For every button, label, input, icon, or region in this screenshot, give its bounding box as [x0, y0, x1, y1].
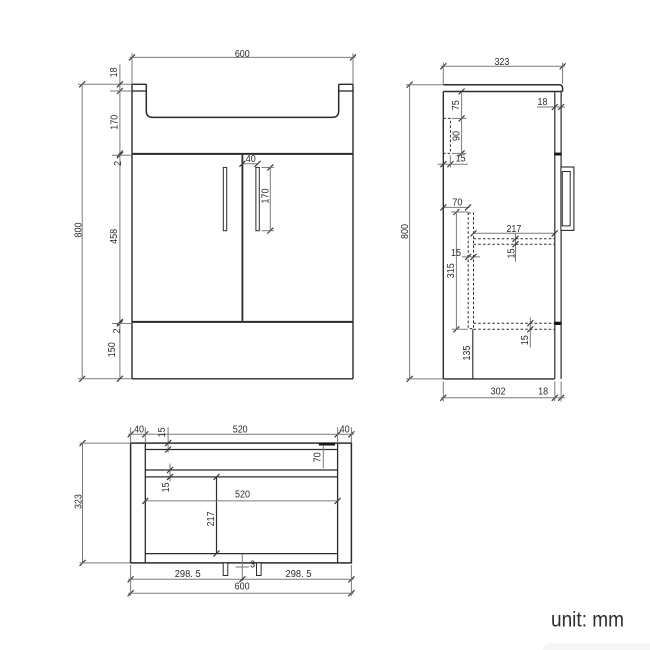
- svg-text:90: 90: [452, 131, 463, 141]
- svg-text:520: 520: [235, 490, 250, 501]
- svg-text:800: 800: [400, 224, 411, 239]
- svg-text:298. 5: 298. 5: [286, 569, 312, 580]
- svg-text:458: 458: [109, 229, 120, 244]
- svg-text:15: 15: [456, 154, 466, 165]
- svg-text:323: 323: [494, 57, 509, 68]
- svg-text:15: 15: [507, 248, 518, 258]
- svg-text:15: 15: [157, 427, 168, 437]
- svg-text:unit: mm: unit: mm: [551, 609, 624, 632]
- svg-text:800: 800: [74, 222, 85, 237]
- svg-text:600: 600: [235, 49, 250, 60]
- svg-text:18: 18: [109, 67, 120, 77]
- svg-text:520: 520: [233, 425, 248, 436]
- svg-text:217: 217: [206, 511, 217, 526]
- svg-text:18: 18: [538, 97, 548, 108]
- svg-text:170: 170: [110, 114, 121, 129]
- svg-text:15: 15: [451, 248, 461, 259]
- svg-text:217: 217: [506, 224, 521, 235]
- svg-text:18: 18: [538, 387, 548, 398]
- svg-text:298. 5: 298. 5: [175, 569, 201, 580]
- svg-text:40: 40: [134, 425, 144, 436]
- svg-text:75: 75: [451, 100, 462, 110]
- svg-text:3: 3: [250, 560, 255, 571]
- svg-text:150: 150: [107, 342, 118, 357]
- svg-text:40: 40: [246, 154, 256, 165]
- svg-text:170: 170: [261, 188, 272, 203]
- svg-text:302: 302: [491, 387, 506, 398]
- svg-text:70: 70: [452, 198, 462, 209]
- svg-text:15: 15: [520, 335, 531, 345]
- svg-text:40: 40: [340, 425, 350, 436]
- svg-text:2: 2: [113, 161, 124, 166]
- svg-text:600: 600: [235, 581, 250, 592]
- svg-text:15: 15: [161, 482, 172, 492]
- svg-text:70: 70: [313, 452, 324, 462]
- svg-text:2: 2: [112, 328, 123, 333]
- svg-text:323: 323: [73, 494, 84, 509]
- svg-text:135: 135: [462, 345, 473, 360]
- svg-text:315: 315: [446, 263, 457, 278]
